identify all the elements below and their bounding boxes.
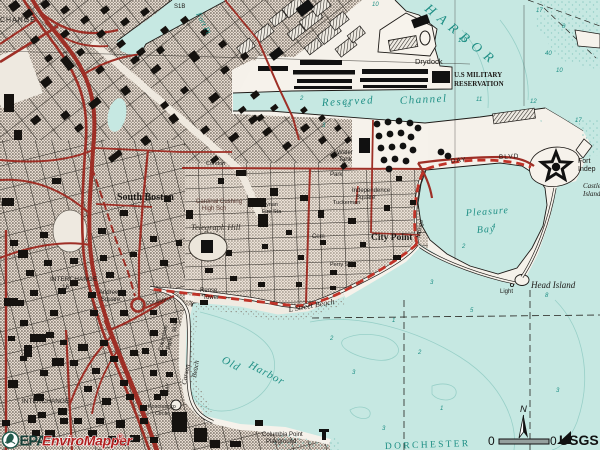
svg-text:Perry Sch: Perry Sch <box>330 262 354 268</box>
svg-text:Castle: Castle <box>583 182 600 190</box>
svg-text:10: 10 <box>556 68 563 74</box>
svg-text:INTERCHANGE: INTERCHANGE <box>22 398 70 405</box>
svg-text:City Point: City Point <box>371 233 413 243</box>
svg-text:U.S MILITARY: U.S MILITARY <box>454 71 502 79</box>
svg-text:2: 2 <box>461 244 466 250</box>
svg-text:South Boston: South Boston <box>117 192 174 203</box>
svg-text:Fort: Fort <box>578 158 591 165</box>
svg-text:12: 12 <box>530 99 537 105</box>
svg-text:16: 16 <box>62 284 70 291</box>
svg-text:Indep: Indep <box>578 166 596 173</box>
svg-text:Circle: Circle <box>155 411 169 417</box>
svg-text:Tank: Tank <box>339 157 353 163</box>
svg-text:Tynan: Tynan <box>263 202 278 208</box>
svg-text:10: 10 <box>458 38 465 44</box>
svg-text:Fire Sta: Fire Sta <box>262 209 282 215</box>
svg-text:Island: Island <box>582 190 600 198</box>
svg-text:S1B: S1B <box>174 4 185 10</box>
svg-text:RESERVATION: RESERVATION <box>454 80 504 88</box>
svg-text:N: N <box>520 404 527 415</box>
svg-text:Park: Park <box>330 172 343 178</box>
svg-text:Telegraph Hill: Telegraph Hill <box>191 222 241 232</box>
svg-text:USGS: USGS <box>559 432 599 448</box>
svg-text:Independence: Independence <box>352 188 391 194</box>
svg-text:1: 1 <box>392 318 395 324</box>
svg-text:10: 10 <box>344 103 351 109</box>
svg-text:Rense: Rense <box>200 288 218 294</box>
svg-text:Kosciuszko: Kosciuszko <box>148 404 176 410</box>
svg-text:Andrew: Andrew <box>99 290 120 296</box>
svg-text:High Sch: High Sch <box>202 206 226 212</box>
svg-text:CHANGE: CHANGE <box>0 17 36 24</box>
svg-text:2: 2 <box>417 350 422 356</box>
svg-text:17: 17 <box>536 8 543 14</box>
svg-text:Playground: Playground <box>266 439 296 445</box>
svg-text:Channel: Channel <box>400 93 448 107</box>
svg-text:Columbia Point: Columbia Point <box>262 432 303 438</box>
svg-text:Condon: Condon <box>206 161 225 167</box>
svg-text:10: 10 <box>372 2 379 8</box>
svg-text:17: 17 <box>575 118 582 124</box>
svg-text:Tower: Tower <box>203 295 219 301</box>
svg-text:®: ® <box>117 432 124 442</box>
svg-text:1: 1 <box>440 406 443 412</box>
svg-text:11: 11 <box>476 97 482 103</box>
svg-text:0: 0 <box>488 434 495 448</box>
svg-text:INTERCHANGE: INTERCHANGE <box>50 276 98 283</box>
svg-text:Light: Light <box>500 289 513 295</box>
svg-text:40: 40 <box>545 51 552 57</box>
svg-text:Cardinal Cushing: Cardinal Cushing <box>196 199 242 205</box>
svg-text:Water: Water <box>337 150 353 156</box>
svg-text:Drydock: Drydock <box>415 57 443 66</box>
svg-text:Square: Square <box>101 297 121 303</box>
svg-text:D O R C H E S T E R: D O R C H E S T E R <box>385 439 469 450</box>
svg-text:2: 2 <box>299 96 304 102</box>
svg-text:2: 2 <box>329 336 334 342</box>
svg-text:Head Island: Head Island <box>530 280 576 290</box>
svg-text:Tuckerman: Tuckerman <box>333 200 360 206</box>
svg-text:BLVD: BLVD <box>172 318 179 332</box>
svg-text:BLVD: BLVD <box>499 153 520 161</box>
svg-text:Cem: Cem <box>312 234 325 240</box>
svg-text:0: 0 <box>550 434 557 448</box>
